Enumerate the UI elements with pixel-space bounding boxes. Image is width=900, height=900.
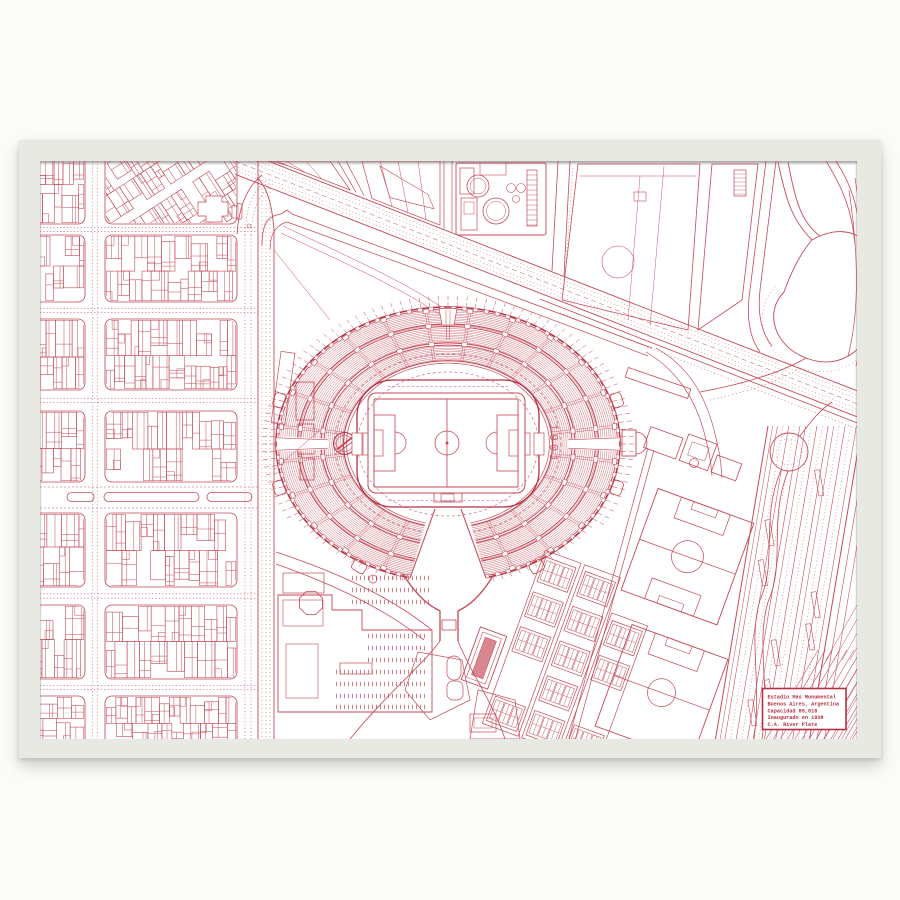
svg-text:Buenos Aires, Argentina: Buenos Aires, Argentina [768,701,840,707]
svg-text:C.A. River Plate: C.A. River Plate [768,722,818,728]
svg-text:Estadio Más Monumental: Estadio Más Monumental [768,695,837,701]
svg-text:1901: 1901 [546,424,560,465]
svg-text:Inaugurado en 1938: Inaugurado en 1938 [768,715,824,721]
svg-text:Capacidad 85,018: Capacidad 85,018 [768,708,818,714]
